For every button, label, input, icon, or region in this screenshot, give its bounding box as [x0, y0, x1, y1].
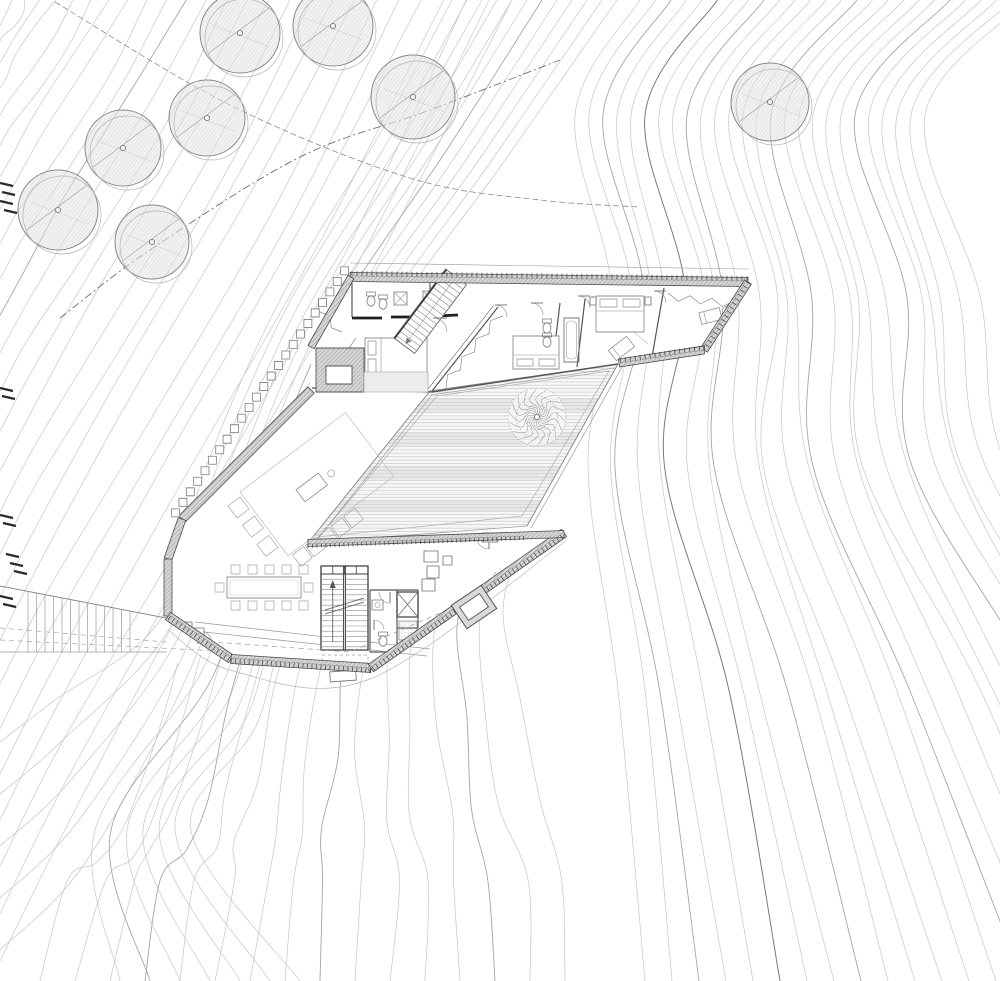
bed	[596, 296, 644, 332]
bed	[513, 336, 559, 369]
main-stair	[321, 566, 368, 650]
courtyard-tree	[508, 388, 566, 446]
site-plan-drawing	[0, 0, 1000, 981]
site-plan-page	[0, 0, 1000, 981]
wall-band	[164, 559, 172, 616]
